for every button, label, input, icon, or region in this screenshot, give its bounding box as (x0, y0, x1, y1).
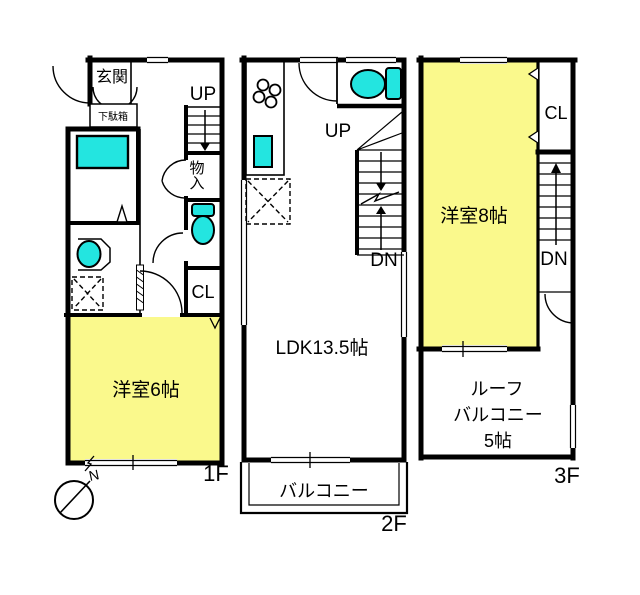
label-dn-2f: DN (370, 250, 397, 271)
stairs-arrow-head-3f (551, 163, 561, 173)
label-floor-1f: 1F (203, 461, 229, 486)
label-floor-3f: 3F (554, 463, 580, 488)
washer-pan (72, 277, 103, 310)
wash-basin (78, 241, 101, 267)
floor-3f: 洋室8帖 CL DN ルーフ バルコニー 5帖 3F (419, 56, 580, 488)
toilet-2f (351, 68, 401, 99)
stairs-arrow-head-1f (200, 143, 210, 151)
roof-balcony-door-arc (545, 294, 574, 323)
storage-double-door (162, 160, 186, 198)
burner (266, 97, 277, 108)
toilet-door-arc-1f (153, 233, 183, 263)
burner (270, 85, 281, 96)
compass-needle-line (60, 481, 90, 513)
label-dn-3f: DN (540, 249, 567, 270)
label-roof-balcony-3: 5帖 (484, 431, 512, 451)
burner (254, 92, 265, 103)
washer-pan-cross (74, 279, 101, 308)
burner (258, 80, 269, 91)
label-ldk: LDK13.5帖 (276, 337, 369, 359)
floorplan-drawing: 玄関 下駄箱 UP 物入 CL 洋室6帖 1F (0, 0, 640, 590)
bathtub (77, 136, 128, 168)
label-roof-balcony-2: バルコニー (453, 405, 543, 425)
floor-1f: 玄関 下駄箱 UP 物入 CL 洋室6帖 1F (53, 56, 229, 486)
bedroom-door-arc-1f (140, 271, 182, 313)
toilet-tank (192, 204, 214, 216)
floorplan-page: 玄関 下駄箱 UP 物入 CL 洋室6帖 1F (0, 0, 640, 590)
label-closet-1f: CL (191, 282, 214, 302)
refrigerator-space (246, 179, 290, 224)
label-bedroom-8: 洋室8帖 (440, 205, 508, 227)
label-closet-3f: CL (544, 103, 567, 123)
window-top-1f (147, 56, 168, 64)
bedroom-8-room-fill (421, 60, 537, 349)
floor-2f: UP DN LDK13.5帖 バルコニー 2F (240, 56, 408, 536)
label-north: N (87, 466, 100, 484)
entrance-door-arc (53, 66, 90, 103)
label-shoe-cabinet: 下駄箱 (98, 110, 128, 123)
label-bedroom-6: 洋室6帖 (112, 379, 180, 401)
bath-door-mark (117, 206, 127, 222)
label-entrance: 玄関 (96, 68, 128, 86)
kitchen-sink (254, 136, 272, 167)
toilet-door-arc-2f (299, 63, 337, 101)
label-roof-balcony-1: ルーフ (471, 379, 524, 399)
label-storage: 物入 (188, 160, 205, 190)
label-floor-2f: 2F (381, 511, 407, 536)
toilet-bowl (192, 216, 214, 244)
label-balcony: バルコニー (279, 481, 369, 501)
stairs-up-arrowhead-2f (376, 206, 386, 214)
label-up-1f: UP (190, 84, 216, 105)
stairs-down-arrowhead-2f (376, 183, 386, 191)
toilet-tank (386, 68, 401, 99)
toilet-1f (192, 204, 214, 244)
fridge-cross (248, 181, 288, 222)
toilet-bowl (351, 70, 385, 98)
label-up-2f: UP (325, 121, 351, 142)
stove-burners (254, 80, 281, 108)
